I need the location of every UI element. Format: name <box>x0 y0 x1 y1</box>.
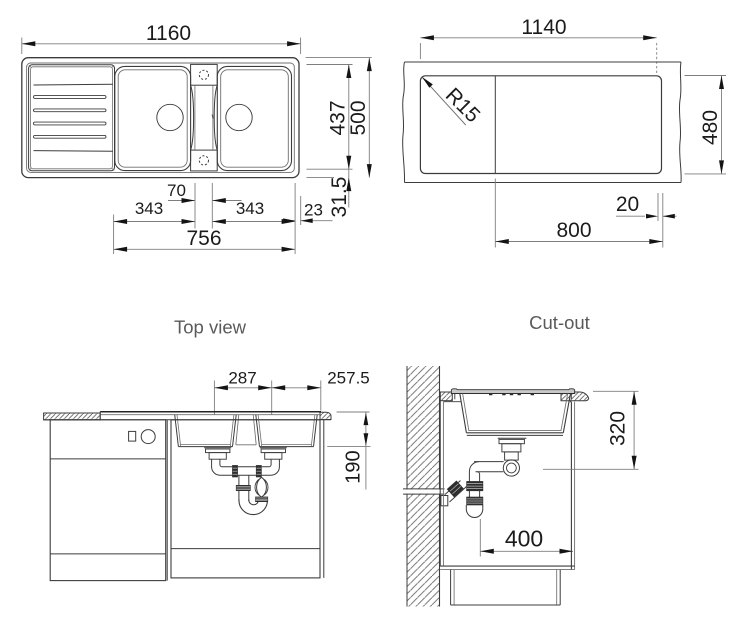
svg-text:20: 20 <box>616 193 639 216</box>
svg-text:343: 343 <box>135 199 163 218</box>
svg-text:257.5: 257.5 <box>327 369 370 388</box>
svg-text:500: 500 <box>347 100 370 135</box>
svg-text:400: 400 <box>505 526 543 552</box>
svg-text:320: 320 <box>607 411 630 446</box>
svg-text:190: 190 <box>343 450 365 483</box>
svg-text:756: 756 <box>186 227 221 250</box>
svg-text:1140: 1140 <box>521 16 566 39</box>
svg-text:23: 23 <box>304 201 323 220</box>
svg-text:70: 70 <box>167 181 186 200</box>
svg-text:1160: 1160 <box>146 22 191 45</box>
svg-text:287: 287 <box>228 369 256 388</box>
svg-text:Cut-out: Cut-out <box>529 312 590 333</box>
svg-text:343: 343 <box>236 199 264 218</box>
svg-text:Top view: Top view <box>174 317 247 338</box>
svg-text:800: 800 <box>556 219 591 242</box>
svg-text:R15: R15 <box>441 84 485 128</box>
svg-text:480: 480 <box>699 110 722 145</box>
svg-text:31.5: 31.5 <box>328 177 351 218</box>
